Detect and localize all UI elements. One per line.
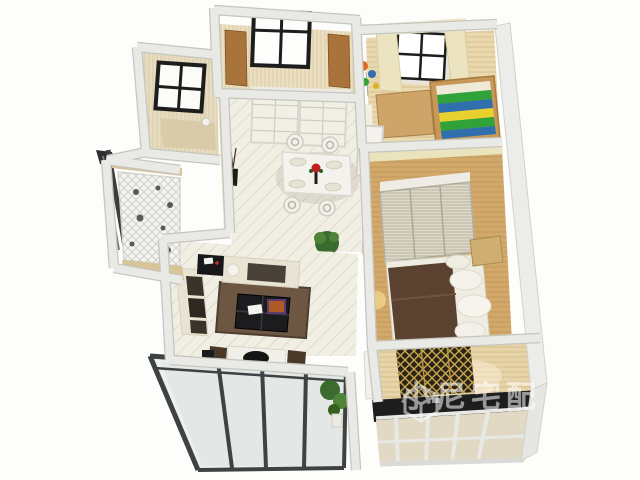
lattice-screen [396, 344, 475, 398]
nightstand [470, 236, 503, 266]
bathroom-fixture [202, 118, 210, 126]
coffee-table [235, 294, 290, 332]
cabinet-right [328, 34, 350, 88]
kids-cabinet [376, 90, 434, 138]
wardrobe [380, 172, 475, 262]
living-room [166, 240, 358, 372]
master-bedroom [366, 143, 512, 350]
floor-plan-3d-render [0, 0, 640, 480]
bathroom-window [155, 62, 204, 111]
side-table [197, 254, 224, 276]
kids-window [393, 29, 450, 84]
floor-plan-screenshot: 小尼宅配 [0, 0, 640, 480]
decorative-screen [118, 172, 180, 266]
art-print [268, 300, 285, 313]
kids-bed [430, 76, 500, 144]
bed [386, 254, 491, 350]
dining-room [226, 86, 362, 264]
cabinet-left [225, 30, 247, 86]
bottom-right-balcony [376, 408, 538, 466]
